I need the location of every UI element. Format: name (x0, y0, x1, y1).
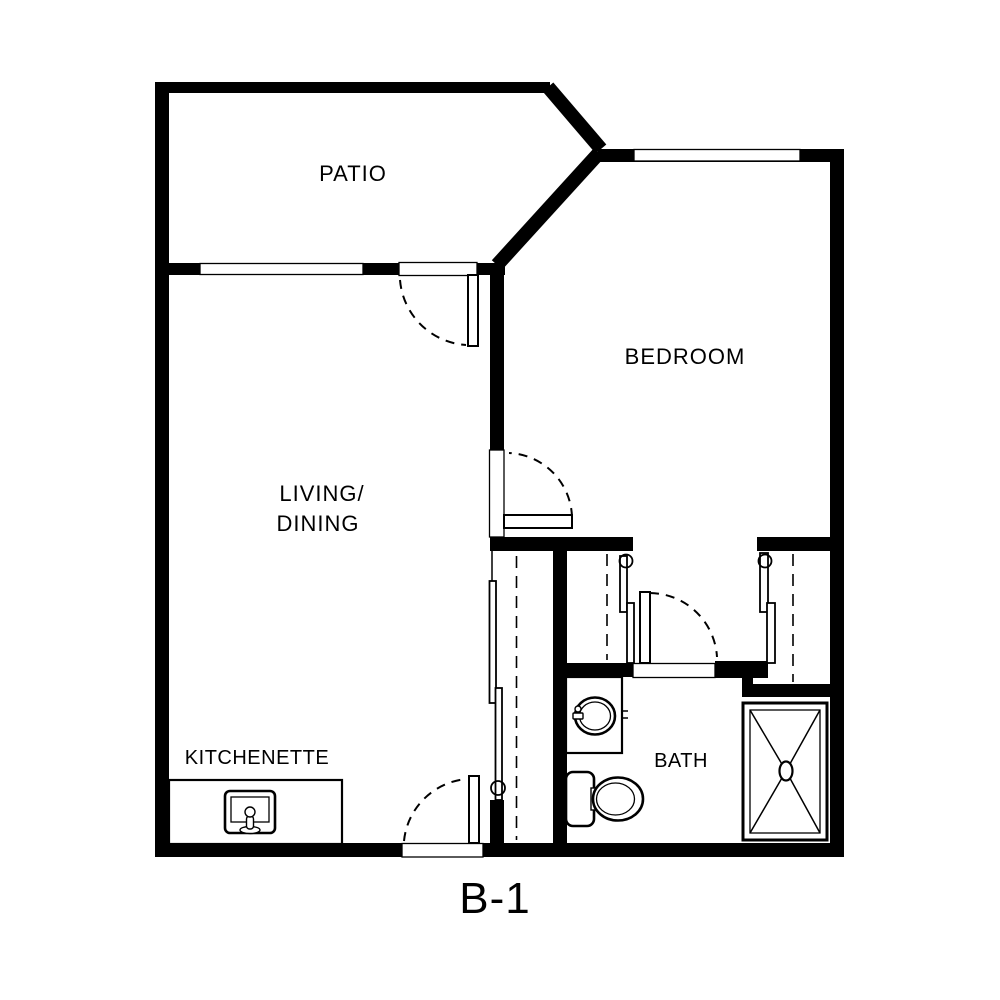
bath-door-leaf (640, 592, 650, 663)
right-closet-south-wall (742, 684, 832, 697)
shower (743, 703, 827, 840)
kitchen-sink (225, 791, 275, 834)
patio-south-wall-seg1 (169, 263, 200, 275)
east-wall (830, 149, 844, 857)
vanity-faucet (573, 713, 583, 719)
plan-title: B-1 (459, 874, 530, 923)
bedroom-south-wall-right (757, 537, 832, 551)
sliding-door-panel (490, 581, 497, 703)
sliding-door-panel (767, 603, 775, 663)
patio-window (200, 264, 363, 275)
entry-door-threshold (402, 844, 483, 858)
patio-label: PATIO (319, 161, 387, 186)
floor-plan-drawing: PATIO BEDROOM LIVING/ DINING KITCHENETTE… (0, 0, 1000, 1000)
patio-door-leaf (468, 275, 478, 346)
vanity-sink (566, 677, 628, 753)
bedroom-west-wall (490, 263, 504, 450)
bedroom-door-leaf (504, 515, 572, 528)
patio-door-threshold (399, 263, 477, 276)
patio-south-wall-seg2 (363, 263, 400, 275)
living-dining-label-line2: DINING (277, 511, 360, 536)
kitchenette-fixtures (169, 780, 342, 844)
sliding-door-panel (496, 688, 503, 800)
floor-plan: PATIO BEDROOM LIVING/ DINING KITCHENETTE… (0, 0, 1000, 1000)
living-closet-south-stub (490, 800, 504, 843)
faucet-stem (247, 816, 254, 829)
toilet-bowl-outer (593, 778, 643, 821)
shower-drain (780, 762, 793, 781)
vanity-faucet-knob (575, 706, 581, 712)
kitchenette-label: KITCHENETTE (185, 747, 329, 769)
bath-door-east-wall (715, 661, 768, 678)
bath-north-wall (553, 663, 633, 677)
sliding-door-panel (627, 603, 634, 663)
bedroom-label: BEDROOM (625, 344, 746, 369)
bedroom-door-threshold (490, 450, 505, 537)
bath-label: BATH (654, 750, 708, 772)
west-wall (155, 82, 169, 857)
entry-door-leaf (469, 776, 479, 843)
bedroom-window (634, 150, 800, 162)
toilet-tank (566, 772, 594, 826)
patio-north-wall (155, 82, 550, 93)
living-dining-label-line1: LIVING/ (279, 481, 364, 506)
faucet-knob (245, 807, 255, 817)
toilet (566, 772, 643, 826)
bath-door-threshold (633, 664, 715, 678)
